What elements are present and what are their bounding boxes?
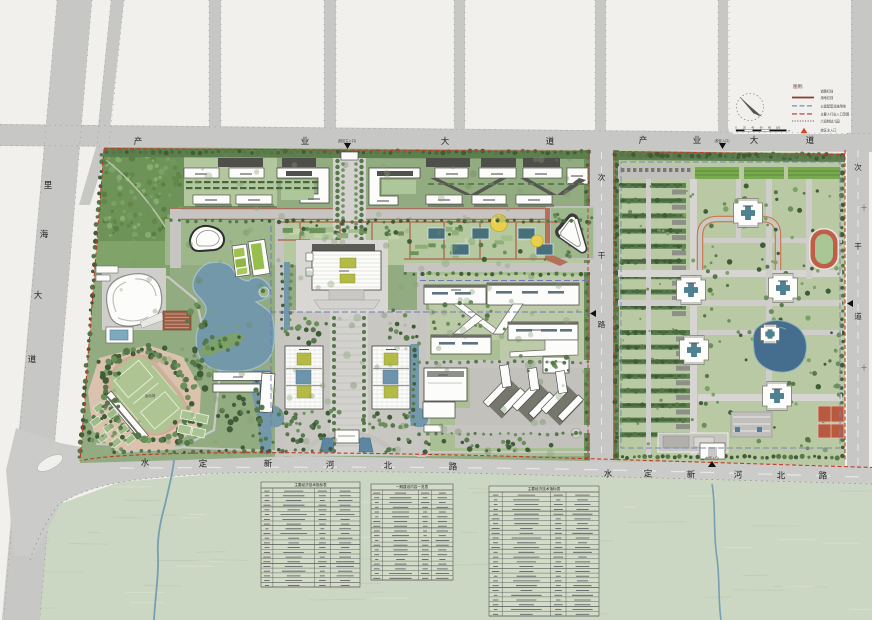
svg-text:道: 道 <box>546 136 555 146</box>
svg-text:道: 道 <box>806 135 815 145</box>
svg-text:路: 路 <box>819 471 828 481</box>
svg-text:大: 大 <box>750 135 759 145</box>
svg-text:道路红线: 道路红线 <box>821 89 835 94</box>
svg-text:(校区入口): (校区入口) <box>715 138 730 143</box>
svg-text:业: 业 <box>693 135 702 145</box>
svg-text:六班制幼儿园: 六班制幼儿园 <box>821 119 840 124</box>
svg-text:主要经济技术指标表: 主要经济技术指标表 <box>528 486 561 491</box>
svg-text:十: 十 <box>861 364 867 372</box>
svg-text:路: 路 <box>449 462 458 472</box>
svg-text:海: 海 <box>40 229 49 239</box>
svg-text:m: m <box>788 129 790 132</box>
svg-text:北: 北 <box>777 471 786 481</box>
svg-text:产: 产 <box>639 135 648 145</box>
svg-text:河: 河 <box>326 460 335 470</box>
svg-text:水: 水 <box>604 469 613 479</box>
svg-text:业: 业 <box>301 136 310 146</box>
svg-text:用地红线: 用地红线 <box>821 95 835 100</box>
svg-text:新: 新 <box>687 470 696 480</box>
svg-text:图例:: 图例: <box>793 83 803 90</box>
svg-text:道: 道 <box>28 354 37 364</box>
svg-text:十: 十 <box>861 204 867 212</box>
svg-text:公建配套设施用地: 公建配套设施用地 <box>821 103 847 108</box>
svg-text:校区主入口: 校区主入口 <box>821 128 837 133</box>
svg-text:产: 产 <box>134 136 143 146</box>
svg-text:大: 大 <box>441 136 450 146</box>
svg-text:干: 干 <box>598 251 606 260</box>
svg-text:里: 里 <box>44 180 53 190</box>
svg-text:次: 次 <box>598 172 606 182</box>
svg-text:100: 100 <box>776 125 781 129</box>
svg-text:(校区主入口): (校区主入口) <box>338 138 356 143</box>
svg-text:水: 水 <box>141 458 150 468</box>
svg-text:一期建设内容一览表: 一期建设内容一览表 <box>396 484 429 489</box>
svg-text:干: 干 <box>854 242 862 251</box>
svg-text:运动场: 运动场 <box>145 393 156 398</box>
svg-text:主要人行出入口范围: 主要人行出入口范围 <box>821 111 850 116</box>
svg-text:新: 新 <box>264 459 273 469</box>
svg-text:定: 定 <box>199 459 208 469</box>
svg-text:(校区入口): (校区入口) <box>705 455 719 460</box>
svg-text:道: 道 <box>854 311 862 321</box>
svg-text:次: 次 <box>854 162 862 172</box>
svg-text:北: 北 <box>384 461 393 471</box>
svg-text:大: 大 <box>34 290 43 300</box>
svg-text:河: 河 <box>734 470 743 480</box>
svg-text:主要经济技术指标表: 主要经济技术指标表 <box>294 482 327 487</box>
svg-text:定: 定 <box>644 469 653 479</box>
svg-text:路: 路 <box>598 319 606 329</box>
